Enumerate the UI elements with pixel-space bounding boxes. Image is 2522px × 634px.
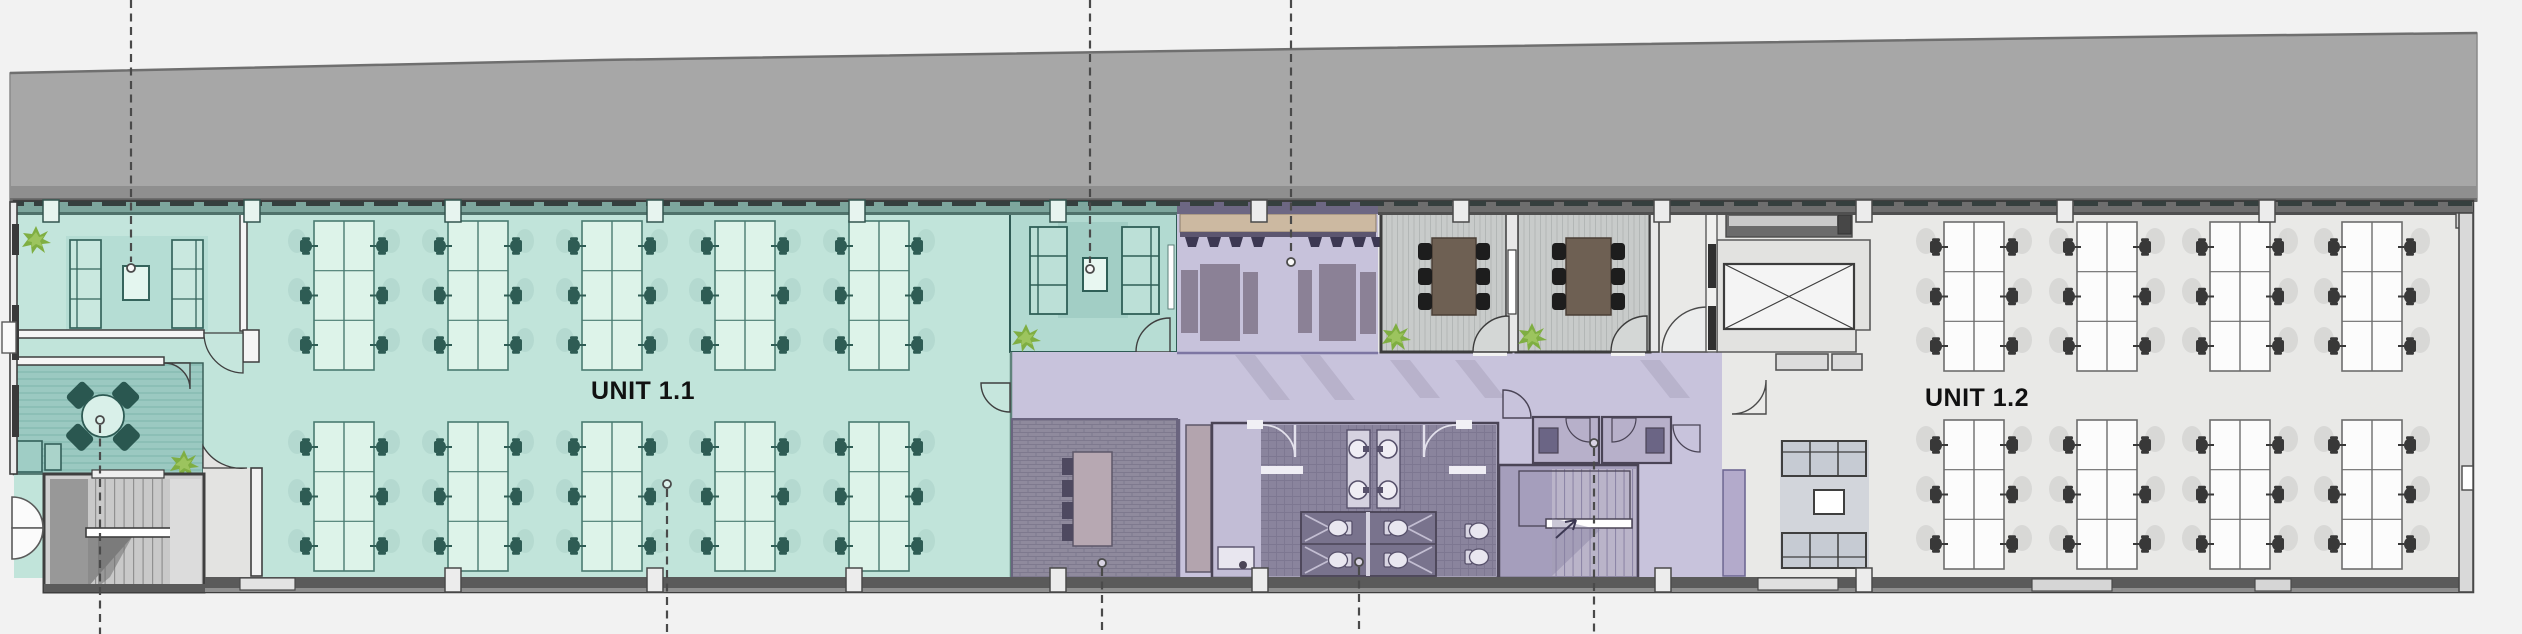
svg-text:UNIT 1.1: UNIT 1.1 bbox=[591, 377, 695, 405]
svg-text:UNIT 1.2: UNIT 1.2 bbox=[1925, 384, 2029, 412]
